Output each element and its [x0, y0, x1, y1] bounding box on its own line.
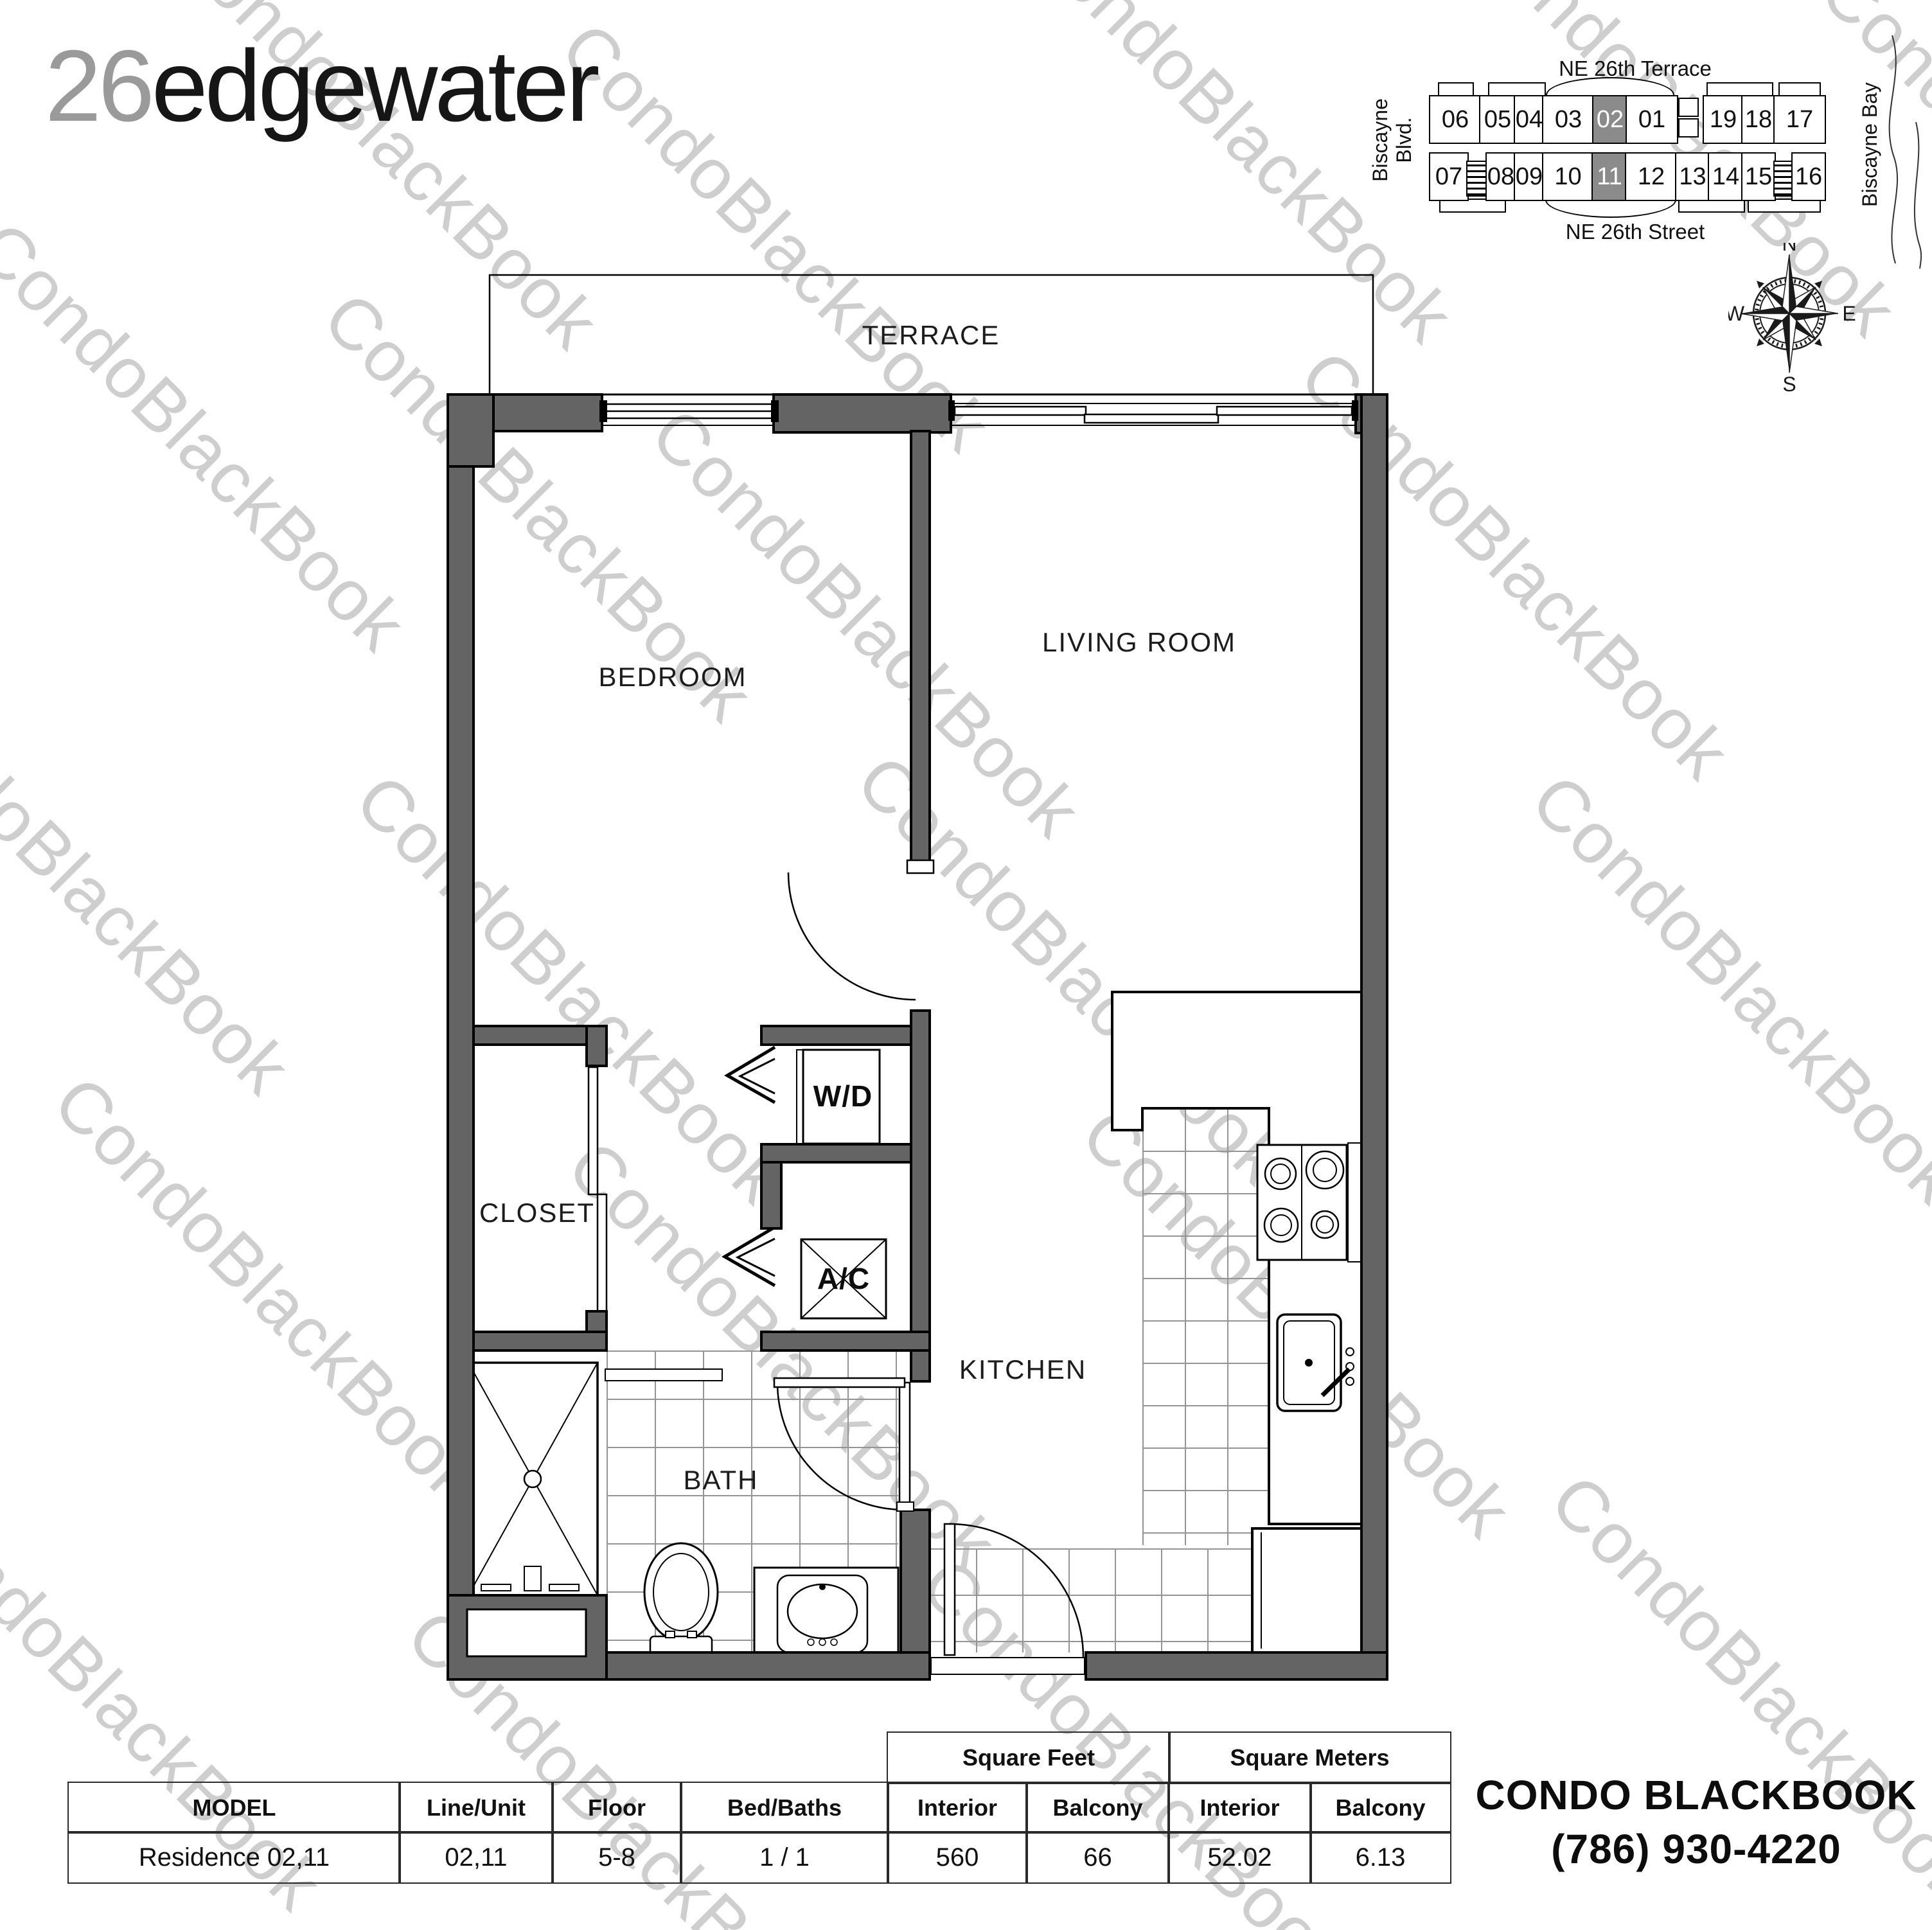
stairs — [1466, 161, 1488, 197]
table-header-bed-baths: Bed/Baths — [680, 1782, 889, 1834]
table-header-sqm-balcony: Balcony — [1309, 1782, 1451, 1834]
site-unit-07: 07 — [1429, 152, 1469, 201]
site-unit-08: 08 — [1485, 152, 1516, 201]
site-unit-15: 15 — [1741, 152, 1776, 201]
vanity-sink — [754, 1568, 898, 1659]
room-label-bedroom: BEDROOM — [598, 662, 747, 692]
room-label-terrace: TERRACE — [862, 320, 1000, 350]
bifold-door — [727, 1047, 775, 1102]
brand-name: CONDO BLACKBOOK — [1471, 1768, 1921, 1822]
balcony-bow — [1545, 200, 1676, 218]
street-label-left: Biscayne Blvd. — [1369, 76, 1392, 204]
compass-north: N — [1782, 243, 1796, 255]
room-label-bath: BATH — [684, 1465, 759, 1495]
stove — [1257, 1143, 1361, 1262]
door-jamb — [907, 860, 934, 873]
site-unit-03: 03 — [1542, 95, 1595, 144]
balcony-tab — [1706, 82, 1773, 96]
table-header-sqm-interior: Interior — [1167, 1782, 1312, 1834]
balcony-tab — [1438, 82, 1474, 96]
site-unit-10: 10 — [1542, 152, 1594, 201]
compass-rose: N E S W — [1728, 243, 1857, 394]
entry-threshold — [931, 1658, 1085, 1674]
site-unit-02-highlighted: 02 — [1592, 95, 1628, 144]
site-unit-05: 05 — [1479, 95, 1516, 144]
brand-phone: (786) 930-4220 — [1471, 1822, 1921, 1876]
shower — [468, 1363, 598, 1595]
bay-shoreline — [1876, 32, 1932, 270]
table-header-model: MODEL — [67, 1782, 401, 1834]
logo-name: edgewater — [152, 30, 597, 143]
bath-door-open-leaf — [774, 1378, 905, 1387]
site-unit-04: 04 — [1514, 95, 1545, 144]
label-ac: A/C — [817, 1262, 870, 1295]
bedroom-door-arc — [788, 872, 916, 1000]
table-value-sqm-interior: 52.02 — [1167, 1831, 1312, 1884]
refrigerator — [1252, 1528, 1365, 1652]
site-unit-13: 13 — [1675, 152, 1710, 201]
closet-door-panel — [598, 1194, 607, 1323]
closet-door-panel — [589, 1067, 598, 1194]
room-label-living-room: LIVING ROOM — [1042, 627, 1236, 657]
table-value-sqft-interior: 560 — [887, 1831, 1028, 1884]
site-unit-19: 19 — [1703, 95, 1744, 144]
compass-west: W — [1728, 302, 1745, 325]
entry-door-arc — [950, 1524, 1083, 1658]
balcony-tab — [1778, 82, 1821, 96]
table-group-square-meters: Square Meters — [1168, 1731, 1451, 1784]
bath-door-leaf — [900, 1383, 910, 1509]
table-header-line-unit: Line/Unit — [398, 1782, 554, 1834]
site-unit-01: 01 — [1626, 95, 1678, 144]
table-value-floor: 5-8 — [551, 1831, 682, 1884]
table-group-square-feet: Square Feet — [887, 1731, 1171, 1784]
shower-niche — [467, 1609, 586, 1656]
street-label-top: NE 26th Terrace — [1539, 57, 1732, 81]
site-unit-09: 09 — [1514, 152, 1545, 201]
elevator-shaft — [1678, 98, 1699, 117]
bath-door-arc — [777, 1383, 905, 1510]
balcony-tab — [1488, 82, 1546, 96]
site-unit-18: 18 — [1741, 95, 1776, 144]
table-header-sqft-balcony: Balcony — [1025, 1782, 1170, 1834]
compass-east: E — [1842, 302, 1856, 325]
table-value-sqm-balcony: 6.13 — [1309, 1831, 1451, 1884]
site-unit-11-highlighted: 11 — [1591, 152, 1627, 201]
label-washer-dryer: W/D — [813, 1079, 873, 1113]
building-key-plan: NE 26th Terrace 06 05 04 03 02 01 19 18 … — [1362, 39, 1932, 260]
door-jamb — [897, 1502, 914, 1511]
site-unit-12: 12 — [1625, 152, 1678, 201]
site-unit-17: 17 — [1773, 95, 1826, 144]
bifold-door — [725, 1227, 775, 1286]
floor-plan: TERRACE BEDROOM LIVING ROOM CLOSET KITCH… — [0, 0, 1932, 1930]
site-unit-14: 14 — [1708, 152, 1744, 201]
site-unit-16: 16 — [1791, 152, 1826, 201]
table-header-sqft-interior: Interior — [887, 1782, 1028, 1834]
logo-number: 26 — [45, 30, 152, 143]
compass-south: S — [1782, 373, 1796, 394]
table-value-model: Residence 02,11 — [67, 1831, 401, 1884]
toilet — [644, 1543, 718, 1660]
room-label-kitchen: KITCHEN — [959, 1354, 1086, 1385]
street-label-bottom: NE 26th Street — [1539, 220, 1732, 244]
table-value-sqft-balcony: 66 — [1025, 1831, 1170, 1884]
terrace-sliding-door — [948, 400, 1358, 423]
table-header-floor: Floor — [551, 1782, 682, 1834]
table-value-bed-baths: 1 / 1 — [680, 1831, 889, 1884]
bedroom-window — [599, 400, 779, 422]
bath-threshold — [605, 1369, 722, 1381]
room-label-closet: CLOSET — [479, 1198, 595, 1228]
entry-door-leaf — [944, 1524, 955, 1655]
building-logo: 26edgewater — [45, 35, 597, 137]
site-unit-06: 06 — [1429, 95, 1482, 144]
table-value-line-unit: 02,11 — [398, 1831, 554, 1884]
brand-contact: CONDO BLACKBOOK (786) 930-4220 — [1471, 1768, 1921, 1876]
floor-plan-sheet: CondoBlackBook CondoBlackBook CondoBlack… — [0, 0, 1932, 1930]
elevator-shaft — [1678, 118, 1699, 137]
